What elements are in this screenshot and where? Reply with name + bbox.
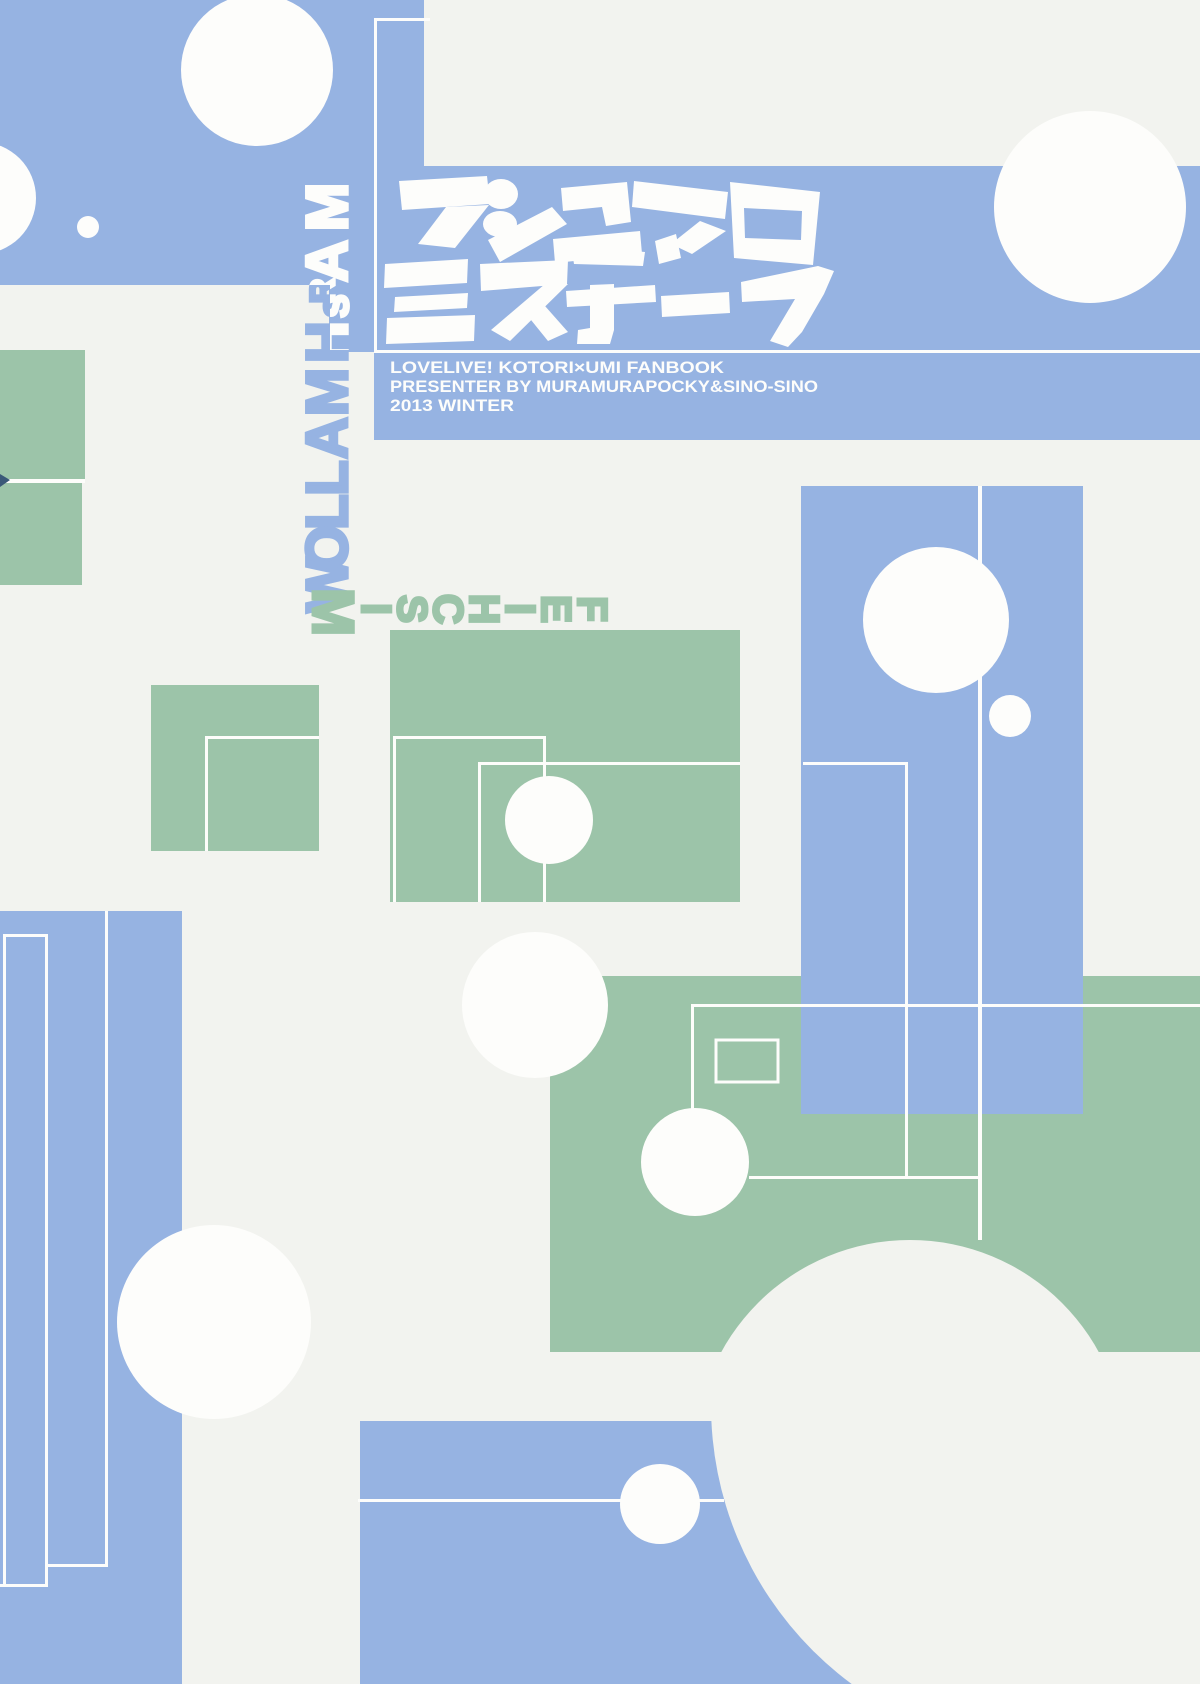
svg-text:LOVELIVE! KOTORI×UMI FANBOOK: LOVELIVE! KOTORI×UMI FANBOOK xyxy=(390,358,725,377)
svg-text:2013 WINTER: 2013 WINTER xyxy=(390,396,514,415)
svg-text:A: A xyxy=(295,240,360,282)
svg-text:M: M xyxy=(295,183,360,231)
svg-text:A: A xyxy=(295,417,360,459)
svg-text:L: L xyxy=(295,494,360,529)
svg-text:M: M xyxy=(295,368,360,416)
svg-text:F: F xyxy=(569,596,616,622)
svg-text:L: L xyxy=(295,460,360,495)
svg-text:PRESENTER BY MURAMURAPOCKY&SIN: PRESENTER BY MURAMURAPOCKY&SINO-SINO xyxy=(390,377,818,396)
